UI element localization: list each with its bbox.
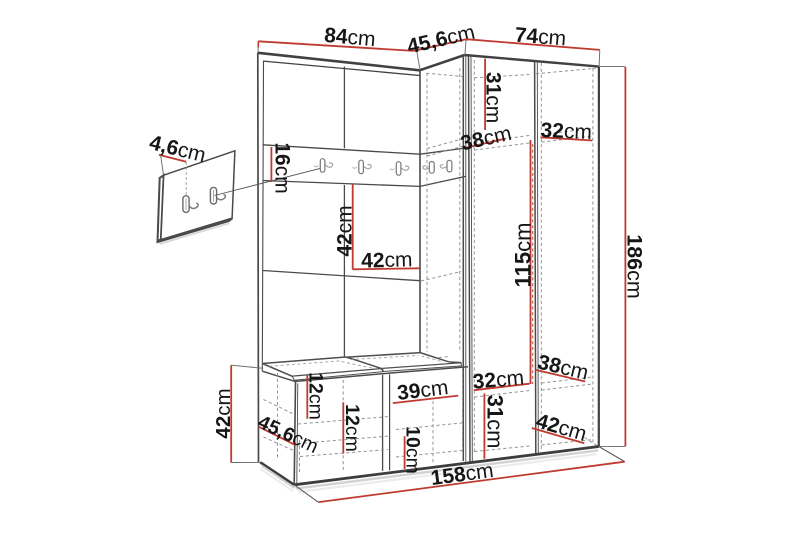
svg-text:12cm: 12cm	[341, 404, 363, 452]
svg-text:12cm: 12cm	[305, 372, 327, 420]
svg-text:31cm: 31cm	[482, 72, 505, 123]
svg-text:186cm: 186cm	[623, 234, 647, 299]
svg-text:42cm: 42cm	[212, 388, 235, 438]
svg-text:42cm: 42cm	[361, 248, 413, 272]
svg-text:32cm: 32cm	[540, 119, 592, 144]
svg-text:42cm: 42cm	[334, 205, 357, 256]
svg-text:74cm: 74cm	[514, 23, 567, 50]
svg-text:31cm: 31cm	[483, 395, 508, 449]
svg-text:16cm: 16cm	[271, 142, 294, 193]
svg-text:32cm: 32cm	[472, 366, 525, 393]
svg-text:115cm: 115cm	[511, 223, 536, 288]
svg-text:10cm: 10cm	[402, 426, 424, 474]
svg-text:84cm: 84cm	[323, 24, 376, 51]
